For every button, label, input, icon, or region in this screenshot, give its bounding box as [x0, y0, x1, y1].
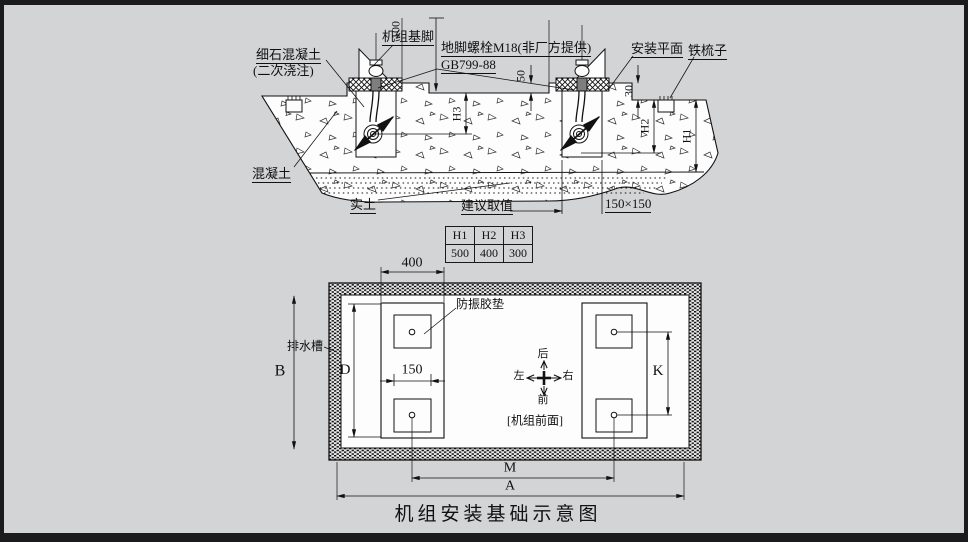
- label-iron-comb: 铁梳子: [688, 44, 727, 60]
- dim-100: 100: [390, 21, 403, 39]
- direction-back: 后: [538, 349, 549, 361]
- table-header-cell: H3: [504, 227, 533, 245]
- label-pocket-size: 150×150: [605, 197, 651, 213]
- label-vibration-pad: 防振胶垫: [456, 298, 504, 311]
- label-solid-soil: 实土: [350, 198, 376, 214]
- table-value-cell: 300: [504, 245, 533, 263]
- dim-d: D: [340, 363, 351, 379]
- concrete-body: [262, 83, 718, 202]
- label-anchor-bolt: 地脚螺栓M18(非厂方提供): [441, 41, 591, 57]
- table-value-cell: 400: [475, 245, 504, 263]
- left-bolt-pocket: [356, 91, 396, 157]
- table-header-cell: H1: [446, 227, 475, 245]
- dim-h1: H1: [681, 129, 694, 144]
- direction-right: 右: [563, 371, 574, 383]
- right-iron-comb: [658, 96, 674, 112]
- dim-400: 400: [402, 257, 423, 272]
- label-unit-front: [机组前面]: [507, 415, 563, 428]
- dim-h3: H3: [451, 107, 464, 122]
- label-anchor-bolt-standard: GB799-88: [441, 58, 496, 74]
- label-drain-channel: 排水槽: [287, 340, 323, 353]
- table-value-row: 500 400 300: [446, 245, 533, 263]
- dim-a: A: [505, 480, 515, 495]
- table-header-row: H1 H2 H3: [446, 227, 533, 245]
- left-bolt-plug: [371, 78, 381, 91]
- dim-b: B: [275, 364, 286, 381]
- label-concrete: 混凝土: [252, 167, 291, 183]
- dim-50: 50: [515, 70, 528, 82]
- drawing-caption: 机组安装基础示意图: [394, 505, 601, 525]
- dim-h2: H2: [639, 119, 652, 134]
- direction-front: 前: [538, 395, 549, 407]
- drawing-sheet: 细石混凝土 (二次浇注) 机组基脚 地脚螺栓M18(非厂方提供) GB799-8…: [0, 0, 968, 542]
- right-bolt-plug: [577, 78, 587, 91]
- label-fine-concrete-2: (二次浇注): [253, 64, 314, 78]
- suggestion-table: H1 H2 H3 500 400 300: [445, 226, 533, 263]
- dim-m: M: [504, 462, 516, 477]
- label-mounting-plane: 安装平面: [631, 42, 683, 58]
- direction-left: 左: [514, 371, 525, 383]
- dim-k: K: [653, 364, 664, 380]
- table-title: 建议取值: [461, 199, 513, 215]
- right-bolt-pocket: [562, 91, 602, 157]
- dim-150: 150: [402, 364, 423, 379]
- table-value-cell: 500: [446, 245, 475, 263]
- table-header-cell: H2: [475, 227, 504, 245]
- dim-30: 30: [623, 85, 636, 97]
- label-fine-concrete: 细石混凝土: [256, 48, 321, 64]
- foundation-drawing: [4, 5, 964, 533]
